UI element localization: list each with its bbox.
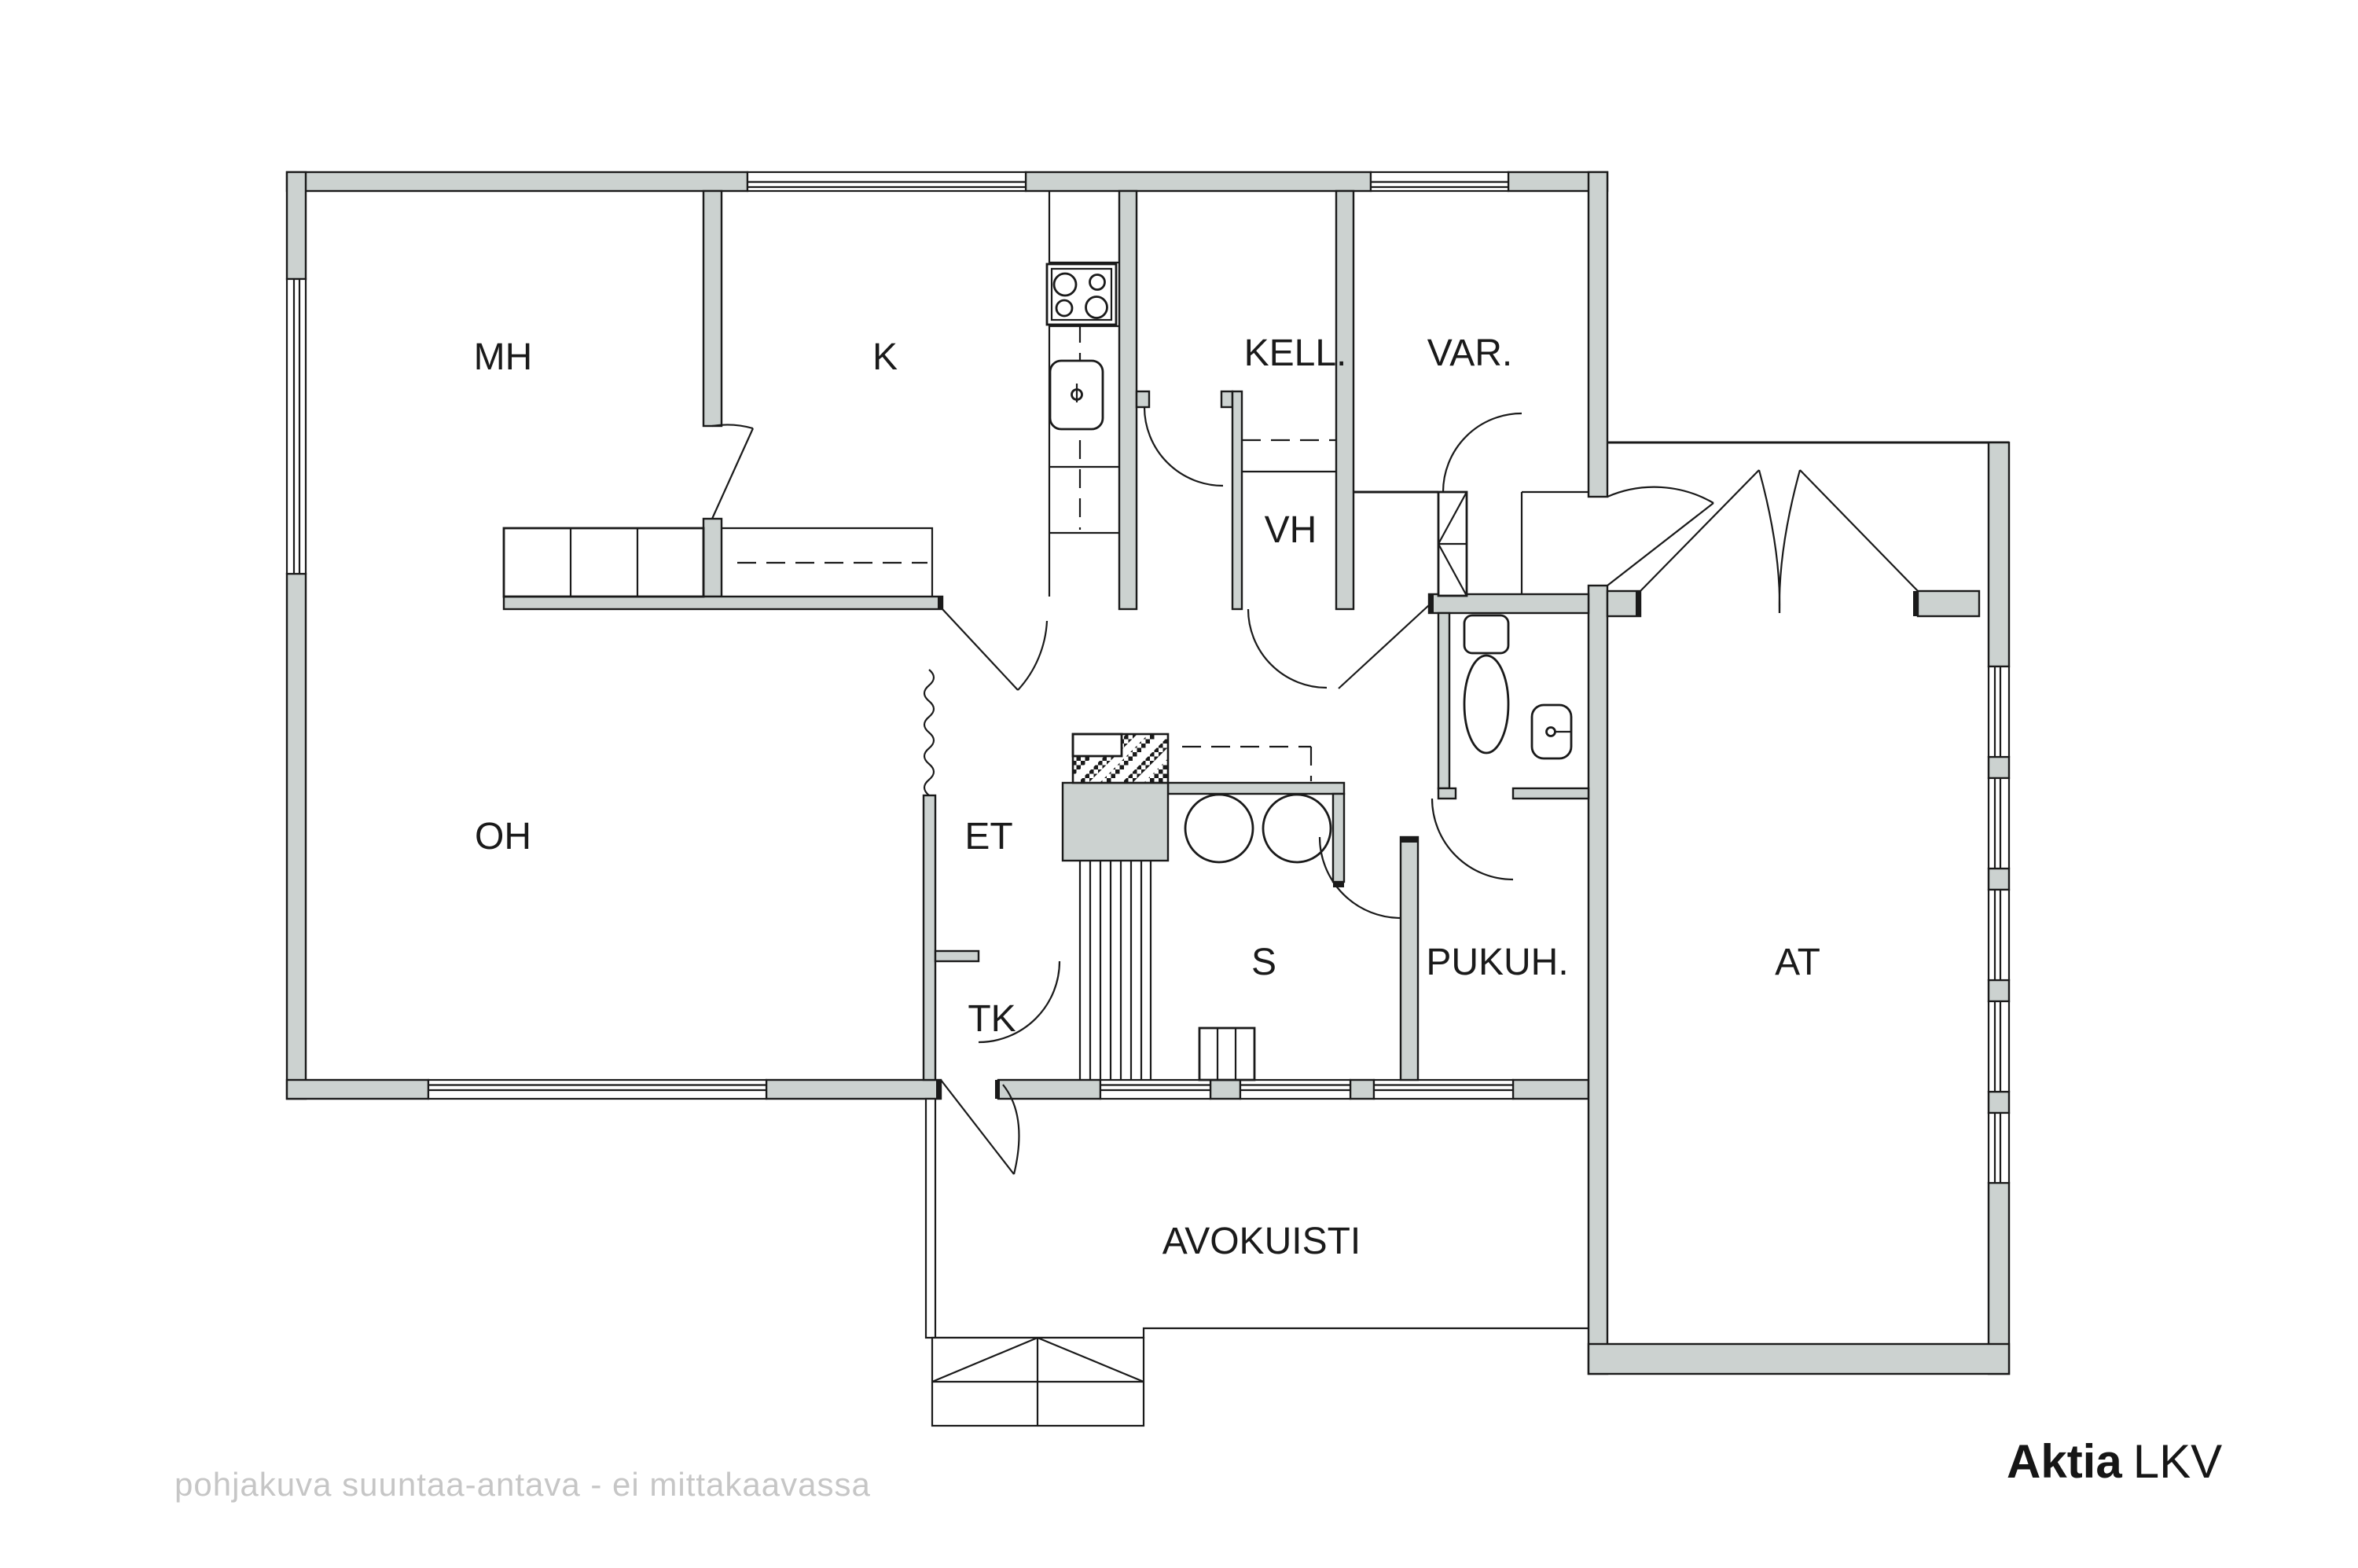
brand-logo: AktiaLKV — [2007, 1435, 2222, 1488]
sauna-benches — [1080, 861, 1151, 1080]
window-mh-west — [287, 279, 306, 574]
room-label-s: S — [1251, 942, 1276, 983]
room-label-kell: KELL. — [1244, 332, 1347, 374]
door-jamb — [1913, 591, 1918, 616]
wall-hall-south — [1429, 594, 1589, 613]
garage-east-pier-3 — [1989, 980, 2009, 1001]
wall-sauna-north — [1168, 783, 1344, 794]
porch — [926, 1099, 1589, 1426]
garage-block — [1589, 442, 2009, 1374]
porch-edge — [935, 1328, 1589, 1338]
wall-bottom-5 — [1350, 1080, 1374, 1099]
chimney-mass — [1063, 783, 1168, 861]
garage-east-pier-4 — [1989, 1092, 2009, 1113]
garage-east-pier-1 — [1989, 757, 2009, 778]
room-label-avokuisti: AVOKUISTI — [1162, 1221, 1361, 1262]
window-kitchen-north — [747, 172, 1026, 191]
duct-shaft — [1438, 492, 1467, 596]
wall-left-upper — [287, 172, 306, 279]
room-label-oh: OH — [475, 816, 531, 857]
kitchen-island-counter — [722, 528, 932, 597]
room-label-mh: MH — [474, 336, 533, 378]
door-jamb — [1636, 591, 1640, 616]
garage-east-pier-2 — [1989, 868, 2009, 890]
wall-bottom-3 — [998, 1080, 1100, 1099]
room-label-var: VAR. — [1427, 332, 1512, 374]
garage-north-wall-left — [1607, 591, 1640, 616]
door-corridor — [942, 609, 1047, 690]
wall-mh-k — [703, 191, 722, 426]
window-pukuh-south — [1374, 1080, 1513, 1099]
garage-double-door — [1640, 470, 1918, 613]
room-label-et: ET — [964, 816, 1012, 857]
wall-bottom-6 — [1513, 1080, 1589, 1099]
room-label-vh: VH — [1265, 509, 1317, 551]
room-label-at: AT — [1775, 942, 1820, 983]
wall-wc-west — [1438, 613, 1449, 788]
window-oh-south — [428, 1080, 766, 1099]
brand-regular: LKV — [2133, 1435, 2222, 1488]
window-sauna-south-2 — [1240, 1080, 1350, 1099]
wall-top-left — [287, 172, 747, 191]
door-kell — [1144, 407, 1223, 486]
door-var — [1443, 413, 1522, 492]
wall-bottom-2 — [766, 1080, 941, 1099]
door-mh — [712, 424, 753, 519]
vh-shelf — [1242, 440, 1336, 472]
washbasin-icon — [1532, 705, 1571, 758]
window-var-north — [1371, 172, 1508, 191]
door-wc — [1432, 799, 1513, 879]
toilet-icon — [1464, 615, 1508, 753]
door-jamb — [1429, 594, 1434, 613]
garage-north-wall-right — [1918, 591, 1979, 616]
wall-vh-west — [1232, 391, 1242, 609]
wall-mh-k-stub — [703, 519, 722, 597]
wall-wc-south-b — [1513, 788, 1589, 799]
wall-left-lower — [287, 574, 306, 1099]
garage-south-wall — [1589, 1344, 2009, 1374]
window-sauna-south-1 — [1100, 1080, 1210, 1099]
wall-bottom-4 — [1210, 1080, 1240, 1099]
door-hall-leaf — [1339, 605, 1429, 689]
wall-kell-south-b — [1221, 391, 1232, 407]
footer: pohjakuva suuntaa-antava - ei mittakaava… — [174, 1435, 2222, 1503]
door-jamb — [938, 597, 942, 609]
mh-wardrobes — [504, 528, 703, 597]
wall-k-kell — [1119, 191, 1137, 609]
stove-icon — [1047, 264, 1116, 325]
fitted-furniture — [504, 191, 1467, 597]
door-sauna — [1320, 837, 1401, 918]
entry-steps — [932, 1338, 1144, 1426]
kitchen-sink-icon — [1050, 361, 1103, 429]
garage-east-wall-upper — [1989, 442, 2009, 666]
back-door-nook — [1522, 492, 1589, 594]
wall-et-west — [924, 795, 935, 1080]
wall-bottom-1 — [287, 1080, 428, 1099]
room-label-k: K — [872, 336, 898, 378]
room-label-pukuh: PUKUH. — [1426, 942, 1568, 983]
wall-tk-stub — [935, 951, 979, 961]
door-vh — [1248, 609, 1327, 688]
wall-wc-south-a — [1438, 788, 1456, 799]
wall-mh-oh — [504, 597, 942, 609]
laundry-appliances — [1182, 747, 1331, 862]
floor-plan-page: MH K KELL. VAR. VH OH ET TK S PUKUH. AT … — [0, 0, 2358, 1568]
wc-fixtures — [1464, 615, 1571, 758]
floor-plan-drawing: MH K KELL. VAR. VH OH ET TK S PUKUH. AT … — [0, 0, 2358, 1568]
wavy-opening-divider — [924, 670, 934, 795]
wall-top-mid — [1026, 172, 1371, 191]
door-jamb — [1401, 837, 1418, 843]
wall-laundry-east — [1333, 794, 1344, 882]
room-label-tk: TK — [968, 998, 1016, 1040]
wall-east-lower — [1589, 586, 1607, 1374]
wall-kell-south-a — [1137, 391, 1149, 407]
wall-east-upper — [1589, 172, 1607, 497]
sauna-stove-icon — [1199, 1028, 1254, 1080]
appliance-circle — [1185, 795, 1253, 862]
wall-s-pukuh — [1401, 837, 1418, 1080]
porch-west-wall — [926, 1099, 935, 1338]
disclaimer-text: pohjakuva suuntaa-antava - ei mittakaava… — [174, 1466, 871, 1503]
brand-bold: Aktia — [2007, 1435, 2122, 1488]
windows — [287, 172, 1513, 1099]
wall-kell-var — [1336, 191, 1353, 609]
